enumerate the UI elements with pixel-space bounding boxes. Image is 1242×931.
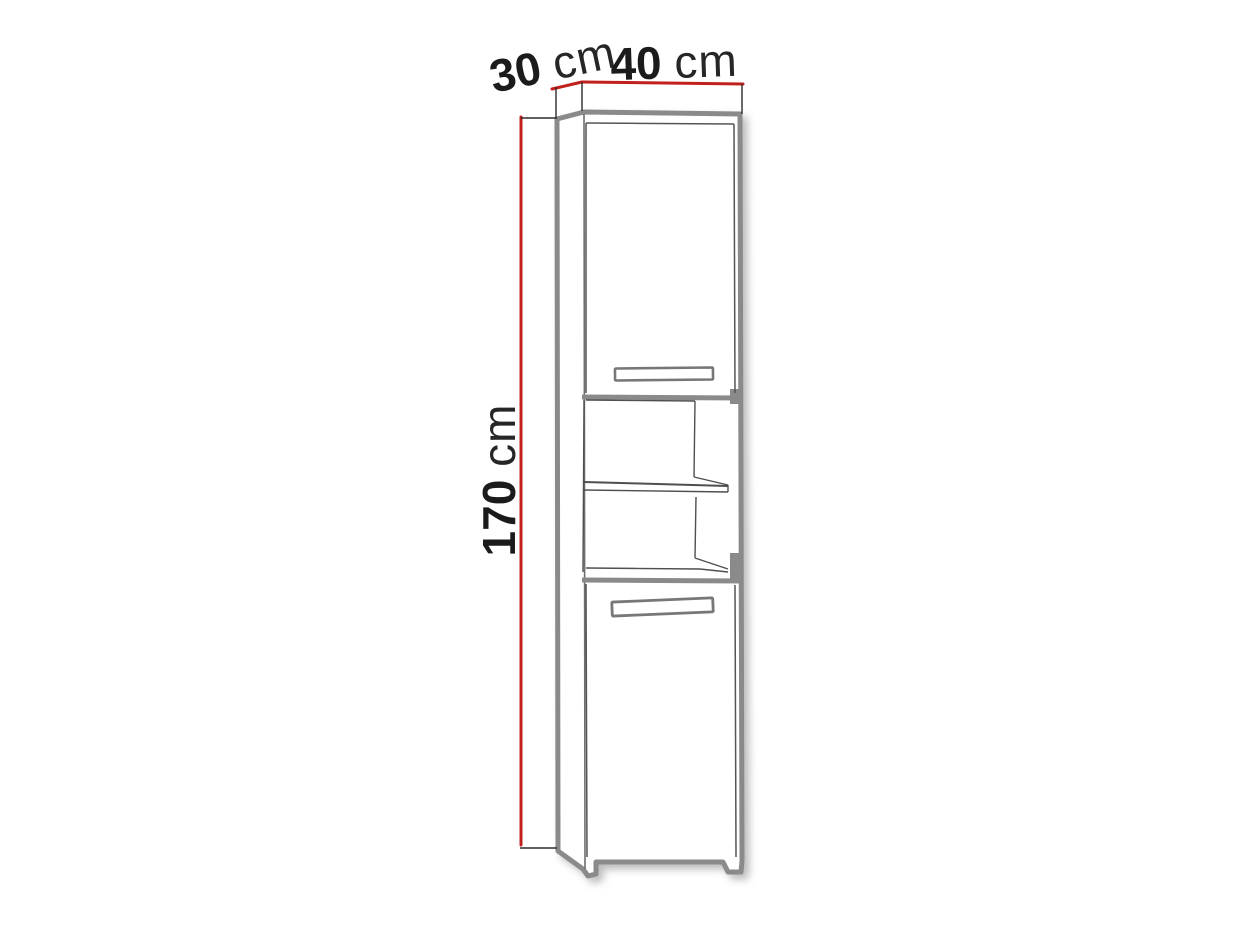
lower-door-left-edge xyxy=(586,584,587,857)
cabinet-drawing-canvas: 30 cm 40 cm 170 cm xyxy=(0,0,1242,931)
width-unit: cm xyxy=(673,34,738,88)
niche-ceiling-edge xyxy=(586,400,695,401)
dimension-diagram: 30 cm 40 cm 170 cm xyxy=(0,0,1242,931)
cabinet xyxy=(557,112,742,876)
niche-floor-edge xyxy=(586,568,700,569)
upper-door-right-edge xyxy=(734,124,735,393)
depth-value: 30 xyxy=(485,41,546,103)
height-unit: cm xyxy=(473,404,525,467)
niche-left-edge xyxy=(583,400,584,572)
lower-door-handle xyxy=(612,598,713,616)
niche-back-corner-upper xyxy=(694,401,695,477)
height-label: 170 cm xyxy=(473,404,525,557)
divider-bottom xyxy=(582,580,741,581)
height-value: 170 xyxy=(473,480,525,557)
niche-back-corner-lower xyxy=(695,497,696,558)
upper-door-handle xyxy=(615,367,713,380)
niche-right-top-block xyxy=(730,389,742,404)
divider-top xyxy=(582,397,741,398)
upper-door-top-edge xyxy=(586,123,734,124)
depth-label: 30 cm xyxy=(485,25,620,102)
width-label: 40 cm xyxy=(609,34,738,90)
width-value: 40 xyxy=(609,36,662,90)
lower-door-right-edge xyxy=(735,585,736,857)
niche-right-bottom-block xyxy=(730,553,742,583)
